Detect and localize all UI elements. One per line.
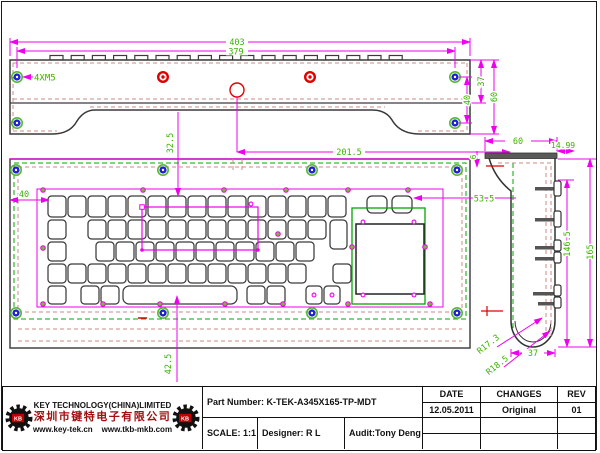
company-url-2: www.tkb-mkb.com	[102, 425, 172, 435]
fastener-dot	[158, 302, 163, 307]
key	[268, 264, 286, 283]
screw-hole-center	[15, 169, 17, 171]
dim-lip: 6	[469, 154, 478, 159]
company-name: KEY TECHNOLOGY(CHINA)LIMITED	[34, 401, 172, 411]
key	[276, 242, 294, 261]
key	[48, 264, 66, 283]
dim-right-mid: 37	[477, 76, 487, 86]
key	[228, 220, 246, 239]
fastener-dot	[222, 188, 227, 193]
side-top-plate	[485, 153, 557, 159]
screw-hole-center	[454, 122, 456, 124]
changes-value: Original	[481, 403, 558, 419]
key	[168, 220, 186, 239]
key	[96, 242, 114, 261]
key-cap-profile	[554, 181, 561, 196]
screw-hole-center	[456, 312, 458, 314]
logo-monogram: KB	[181, 416, 189, 422]
key-cap-profile	[554, 240, 561, 251]
dim-right-outer: 60	[490, 92, 500, 102]
key	[48, 242, 66, 261]
company-logo-left: KB	[5, 402, 33, 434]
key	[88, 220, 106, 239]
pilot-dot	[361, 220, 365, 224]
key	[88, 196, 106, 217]
key-stem	[535, 187, 555, 191]
dim-hole-span: 379	[228, 47, 243, 57]
part-number-cell: Part Number: K-TEK-A345X165-TP-MDT	[203, 387, 423, 418]
key	[248, 264, 266, 283]
key	[392, 196, 412, 213]
empty-cell	[558, 434, 595, 449]
pilot-dot	[412, 293, 416, 297]
dim-left-margin: 40	[19, 190, 29, 200]
key	[247, 286, 265, 304]
dim-bottom-gap: 42.5	[164, 354, 174, 374]
key	[208, 264, 226, 283]
fastener-dot	[41, 246, 46, 251]
key	[108, 264, 126, 283]
key	[48, 196, 66, 217]
key	[176, 242, 194, 261]
key-stem	[535, 246, 555, 250]
title-block: KB KEY TECHNOLOGY(CHINA)LIMITED 深圳市键特电子有…	[2, 386, 596, 451]
company-cell: KB KEY TECHNOLOGY(CHINA)LIMITED 深圳市键特电子有…	[3, 387, 203, 449]
key	[296, 242, 314, 261]
fastener-dot	[284, 188, 289, 193]
key	[188, 264, 206, 283]
fastener-dot	[101, 302, 106, 307]
key	[81, 286, 99, 304]
key	[288, 196, 306, 217]
dim-total-height: 165	[586, 244, 596, 259]
fastener-dot	[428, 302, 433, 307]
fastener-dot	[223, 302, 228, 307]
key	[148, 220, 166, 239]
section-marker	[140, 205, 145, 210]
designer-cell: Designer: R L	[258, 418, 345, 449]
key	[48, 220, 66, 239]
key	[228, 264, 246, 283]
key	[168, 264, 186, 283]
dim-side-depth: 60	[513, 137, 523, 147]
company-urls: www.key-tek.cn www.tkb-mkb.com	[33, 425, 172, 435]
key-cap-profile	[554, 297, 561, 308]
key	[208, 220, 226, 239]
key	[68, 264, 86, 283]
top-view: 403 379 4XM5 40 37 60 201.5	[10, 38, 510, 158]
screw-hole-center	[454, 76, 456, 78]
key	[328, 196, 346, 217]
side-view: 60 14.99 6 146.5 165 37 R17.3 R18.5	[469, 137, 596, 378]
key-cap-profile	[554, 252, 561, 263]
key	[108, 196, 126, 217]
key-cap-profile	[554, 285, 561, 296]
key-stem	[535, 218, 555, 222]
key	[148, 264, 166, 283]
fastener-dot	[406, 188, 411, 193]
dim-right-inner: 40	[463, 95, 473, 105]
fastener-dot	[281, 302, 286, 307]
screw-hole-center	[311, 169, 313, 171]
key	[48, 286, 66, 304]
key	[330, 220, 347, 249]
dim-key-height: 14.99	[551, 141, 575, 150]
key-stem	[535, 257, 555, 261]
screw-hole-center	[162, 312, 164, 314]
screw-hole-center	[311, 312, 313, 314]
key	[108, 220, 126, 239]
empty-cell	[423, 418, 481, 434]
key	[288, 220, 306, 239]
fastener-dot	[346, 302, 351, 307]
key	[333, 264, 351, 283]
key	[128, 220, 146, 239]
screw-hole-center	[16, 122, 18, 124]
side-red-marks	[481, 166, 504, 316]
key-stem	[538, 302, 555, 306]
rev-header: REV	[558, 387, 595, 403]
key	[216, 242, 234, 261]
key	[248, 220, 266, 239]
key	[268, 196, 286, 217]
company-name-cn: 深圳市键特电子有限公司	[34, 411, 172, 425]
scale-cell: SCALE: 1:1	[203, 418, 258, 449]
pilot-dot	[412, 220, 416, 224]
key	[88, 264, 106, 283]
boss-hole-center	[308, 75, 311, 78]
pilot-dot	[249, 202, 253, 206]
pilot-dot	[361, 293, 365, 297]
fastener-dot	[41, 188, 46, 193]
key	[128, 264, 146, 283]
screw-hole-center	[456, 169, 458, 171]
key	[116, 242, 134, 261]
company-logo-right: KB	[172, 402, 200, 434]
rev-value: 01	[558, 403, 595, 419]
fastener-dot	[141, 188, 146, 193]
company-url-1: www.key-tek.cn	[33, 425, 93, 435]
fastener-dot	[41, 302, 46, 307]
empty-cell	[423, 434, 481, 449]
side-outline	[489, 158, 555, 347]
key	[136, 242, 154, 261]
key	[196, 242, 214, 261]
dim-pad-offset: 53.5	[474, 195, 494, 205]
boss-hole-center	[161, 75, 164, 78]
fastener-dot	[346, 188, 351, 193]
key	[188, 220, 206, 239]
empty-cell	[558, 418, 595, 434]
screw-hole-center	[15, 312, 17, 314]
dim-bottom-width: 37	[528, 349, 538, 359]
key	[308, 220, 326, 239]
fastener-dot	[423, 245, 428, 250]
key	[156, 242, 174, 261]
date-header: DATE	[423, 387, 481, 403]
dim-hole-note: 4XM5	[34, 74, 56, 84]
key	[367, 196, 387, 213]
dim-top-gap: 32.5	[166, 133, 176, 153]
screw-hole-center	[16, 76, 18, 78]
logo-monogram: KB	[14, 416, 22, 422]
key	[288, 264, 306, 283]
key	[236, 242, 254, 261]
key-cap-profile	[554, 211, 561, 227]
pilot-dot	[330, 293, 334, 297]
date-value: 12.05.2011	[423, 403, 481, 419]
engineering-drawing: 403 379 4XM5 40 37 60 201.5	[0, 0, 600, 385]
key-stem	[533, 292, 555, 296]
dim-center-offset: 201.5	[336, 148, 362, 158]
key	[308, 196, 326, 217]
screw-hole-center	[162, 169, 164, 171]
dim-front-height: 146.5	[563, 231, 573, 257]
pilot-dot	[312, 293, 316, 297]
section-corner-dot	[256, 248, 260, 252]
fastener-dot	[350, 245, 355, 250]
key	[68, 196, 86, 217]
section-corner-dot	[140, 248, 144, 252]
dim-radius-inner: R17.3	[475, 333, 501, 357]
changes-header: CHANGES	[481, 387, 558, 403]
empty-cell	[481, 418, 558, 434]
audit-cell: Audit:Tony Deng	[345, 418, 423, 449]
fastener-dot	[276, 232, 281, 237]
company-stack: KEY TECHNOLOGY(CHINA)LIMITED 深圳市键特电子有限公司…	[33, 401, 172, 435]
dim-radius-outer: R18.5	[484, 354, 510, 378]
spacebar-key	[123, 286, 237, 304]
empty-cell	[481, 434, 558, 449]
